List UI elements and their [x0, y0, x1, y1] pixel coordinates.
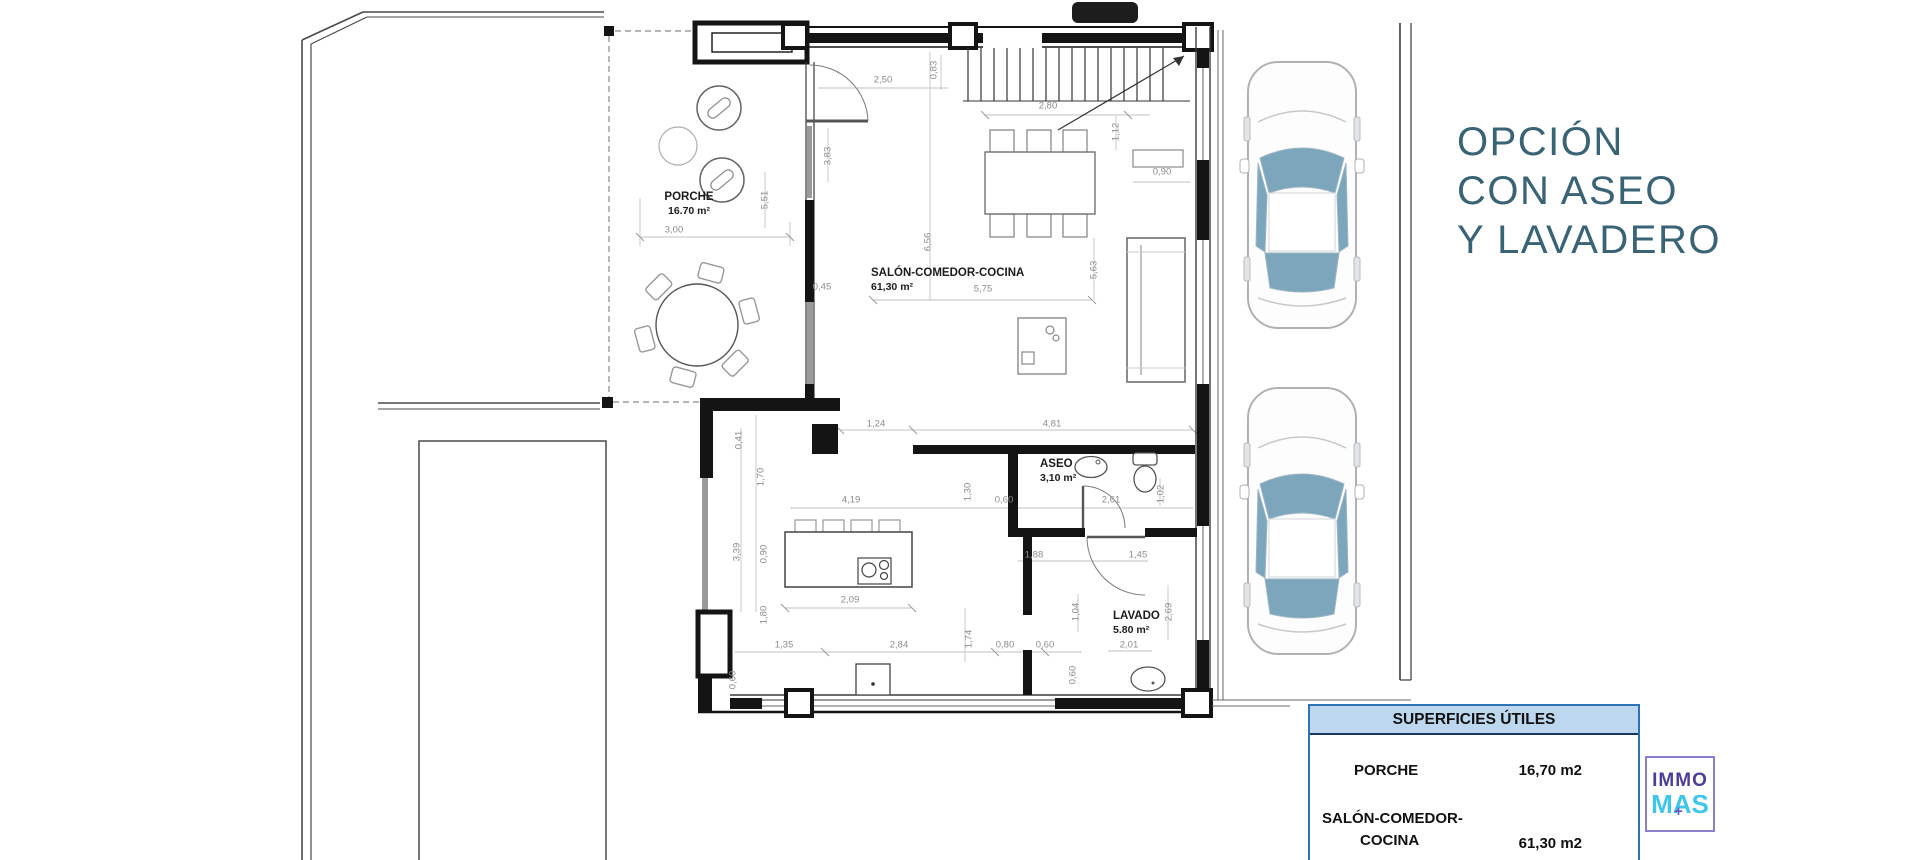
stairs-icon	[963, 48, 1190, 130]
table-row: PORCHE 16,70 m2	[1310, 762, 1638, 779]
row-value: 16,70 m2	[1519, 762, 1582, 779]
row-label-line1: SALÓN-COMEDOR-	[1322, 808, 1463, 830]
surfaces-table: SUPERFICIES ÚTILES PORCHE 16,70 m2 SALÓN…	[1308, 704, 1640, 860]
row-label: PORCHE	[1354, 762, 1418, 779]
immomas-logo: IMMO MAS +	[1645, 756, 1715, 832]
row-value: 61,30 m2	[1519, 835, 1582, 852]
kitchen-island-icon	[785, 520, 912, 587]
surfaces-table-body: PORCHE 16,70 m2 SALÓN-COMEDOR- COCINA 61…	[1310, 735, 1638, 852]
row-label: SALÓN-COMEDOR- COCINA	[1322, 808, 1463, 852]
cooktop-icon	[858, 558, 891, 584]
pool-rectangle	[419, 441, 606, 860]
surfaces-table-header: SUPERFICIES ÚTILES	[1310, 706, 1638, 735]
table-row: SALÓN-COMEDOR- COCINA 61,30 m2	[1310, 808, 1638, 852]
washbasin-icon	[1075, 457, 1107, 478]
logo-text-immo: IMMO	[1652, 771, 1708, 790]
logo-text-mas: MAS +	[1651, 791, 1709, 817]
toilet-icon	[1133, 453, 1157, 492]
logo-plus-icon: +	[1674, 804, 1683, 819]
car-top-view-icon	[1240, 62, 1364, 328]
entry-door-arc	[806, 65, 868, 121]
rooftop-element	[1072, 2, 1138, 23]
laundry-sink-icon	[1131, 667, 1165, 691]
dining-table-icon	[985, 130, 1095, 237]
aseo-door-arc	[1083, 486, 1125, 528]
plant-icon	[697, 86, 741, 130]
side-table-icon	[1018, 318, 1066, 374]
lavado-door-arc	[1087, 537, 1145, 595]
kitchen-sink-icon	[856, 664, 890, 695]
option-title-line: OPCIÓN	[1457, 118, 1721, 167]
sofa-icon	[1127, 238, 1185, 382]
round-table-icon	[634, 262, 760, 388]
plant-icon	[700, 158, 744, 202]
option-title-line: CON ASEO	[1457, 167, 1721, 216]
floor-plan-page: 2,500,832,801,120,903,835,513,006,565,75…	[0, 0, 1920, 860]
plot-boundary-line	[302, 12, 604, 860]
plant-icon	[659, 127, 697, 165]
console-table-icon	[1133, 150, 1183, 167]
option-title: OPCIÓN CON ASEO Y LAVADERO	[1457, 118, 1721, 265]
row-label-line2: COCINA	[1322, 830, 1463, 852]
option-title-line: Y LAVADERO	[1457, 216, 1721, 265]
car-top-view-icon	[1240, 388, 1364, 654]
